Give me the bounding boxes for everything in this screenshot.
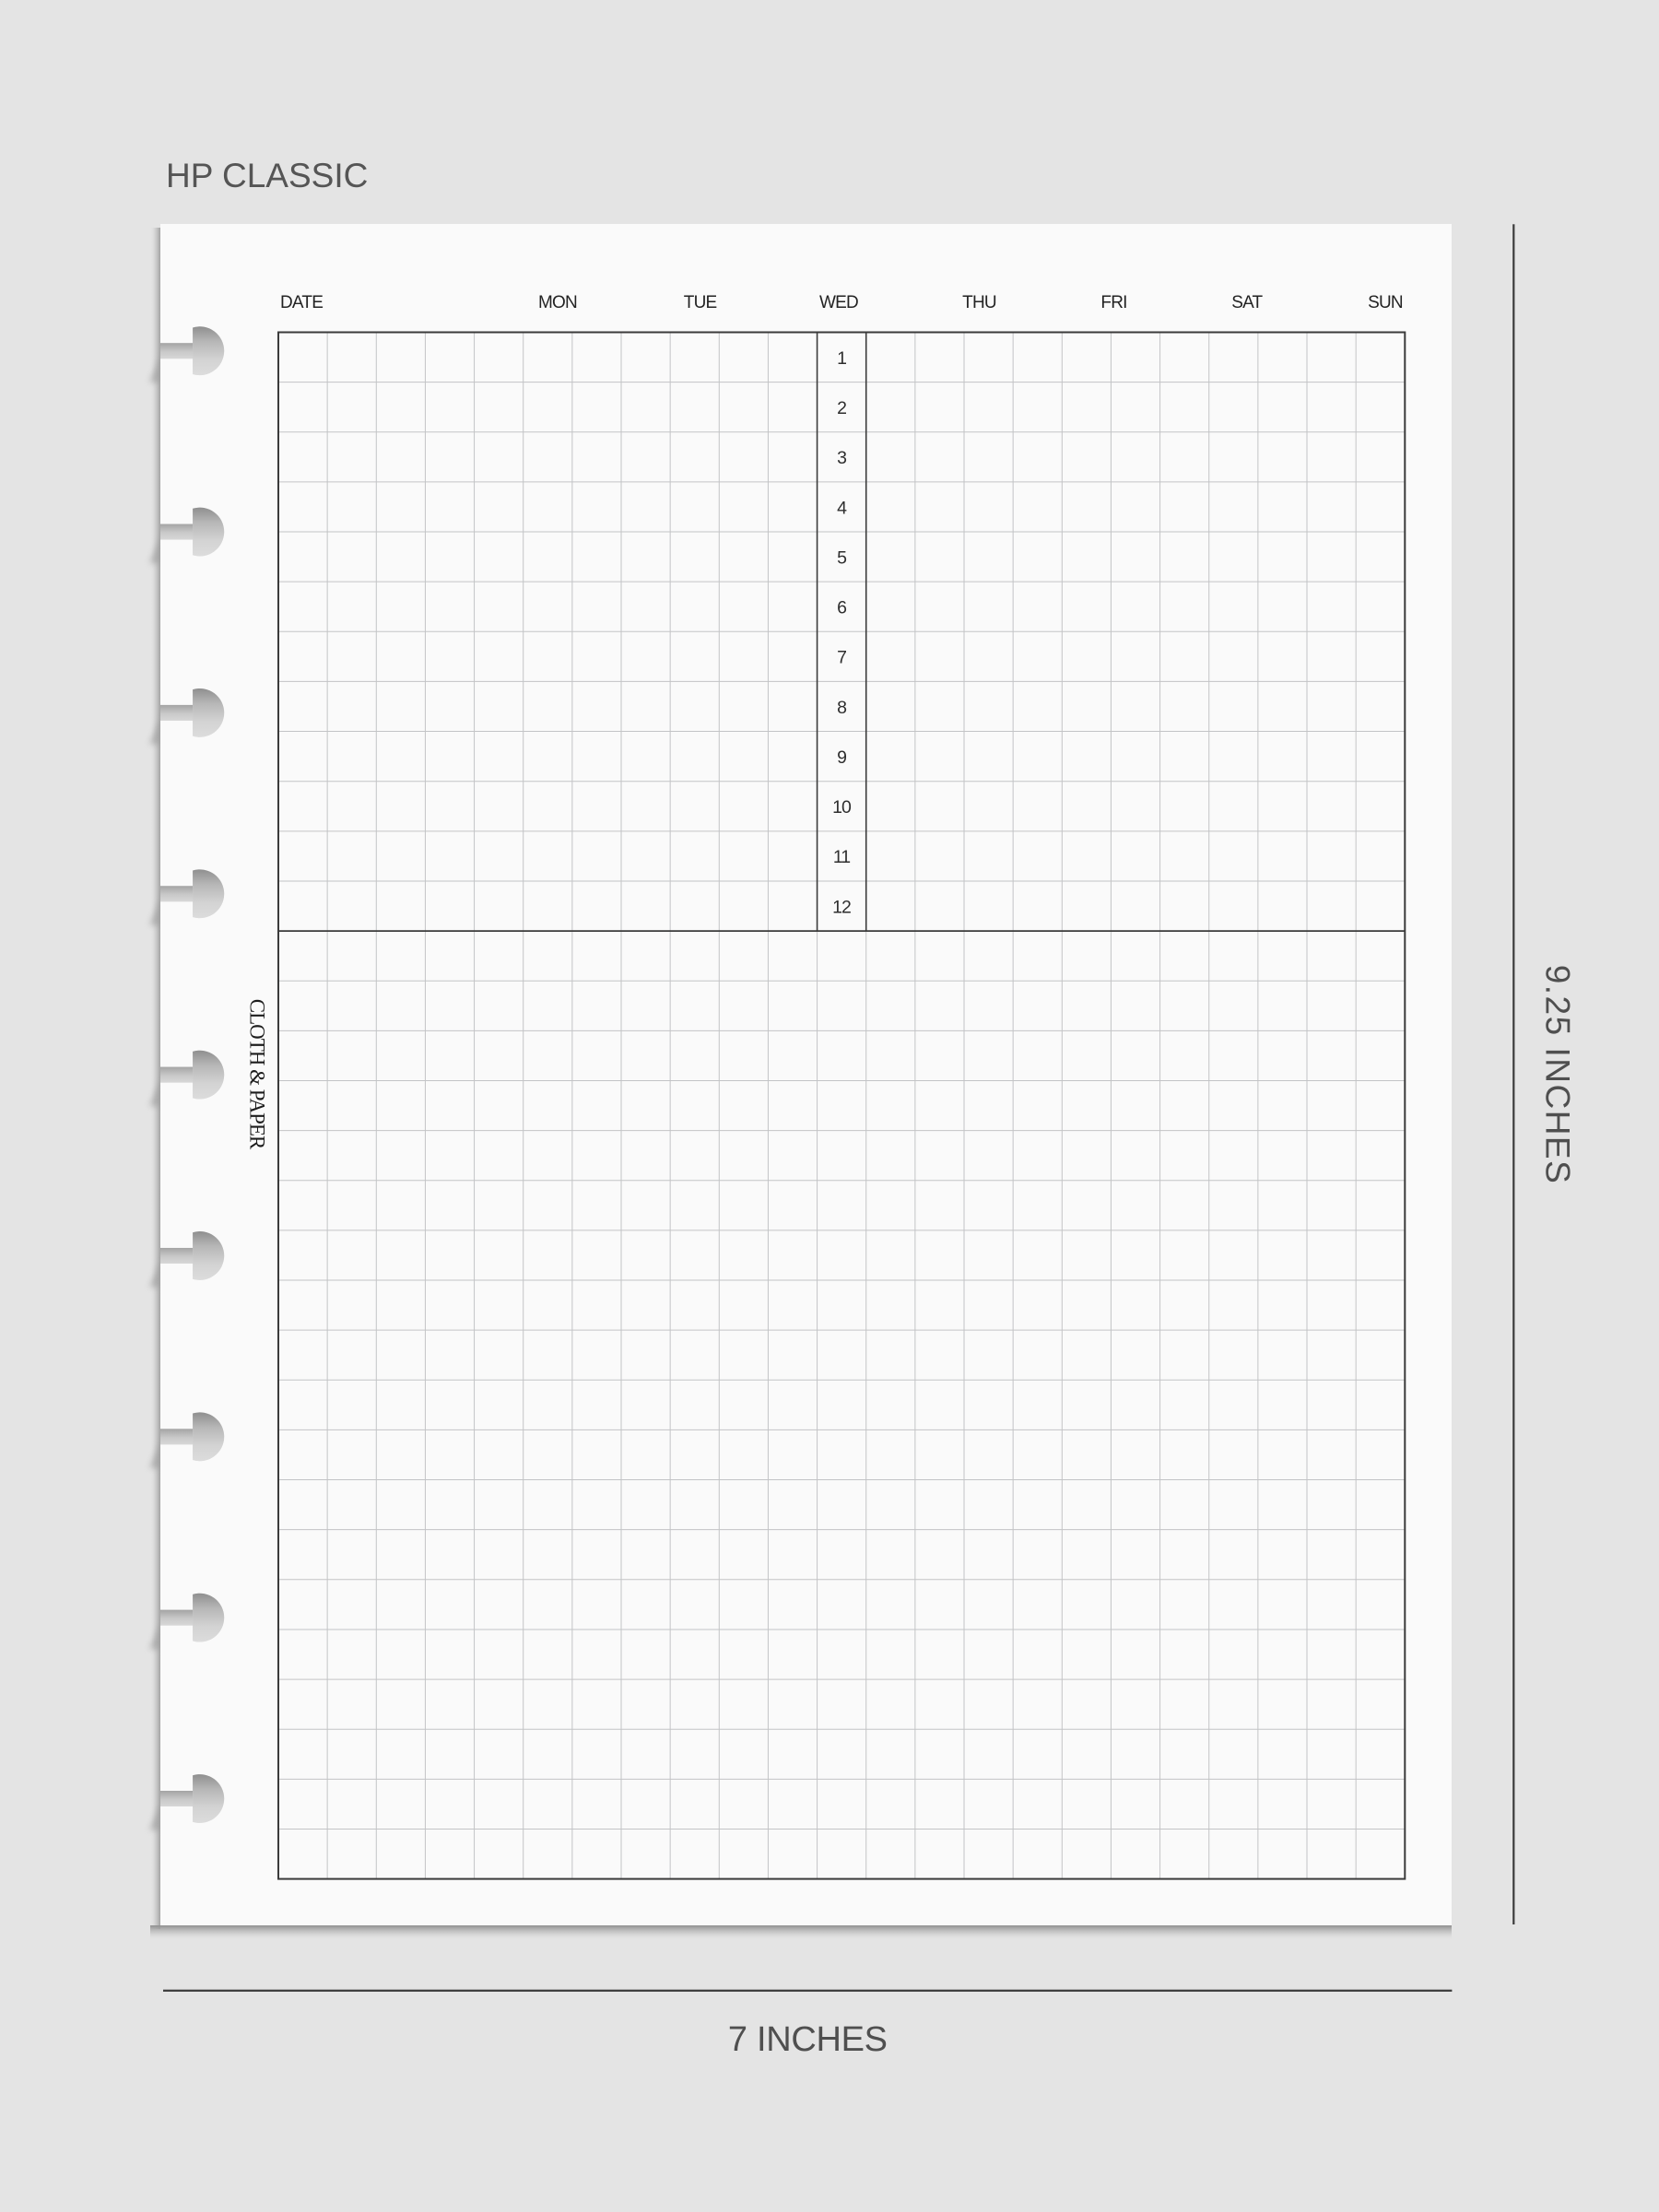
svg-text:10: 10 xyxy=(832,797,852,818)
svg-text:SUN: SUN xyxy=(1368,293,1403,312)
svg-text:9: 9 xyxy=(837,747,846,768)
svg-text:12: 12 xyxy=(832,897,851,917)
svg-text:1: 1 xyxy=(837,348,846,369)
svg-text:THU: THU xyxy=(962,293,996,312)
svg-text:FRI: FRI xyxy=(1100,293,1126,312)
svg-text:6: 6 xyxy=(837,598,846,618)
svg-text:TUE: TUE xyxy=(684,293,717,312)
svg-text:WED: WED xyxy=(819,293,858,312)
svg-text:9.25 INCHES: 9.25 INCHES xyxy=(1539,965,1577,1185)
svg-text:8: 8 xyxy=(837,698,846,718)
svg-text:SAT: SAT xyxy=(1231,293,1263,312)
svg-text:7: 7 xyxy=(837,648,846,668)
svg-text:CLOTH & PAPER: CLOTH & PAPER xyxy=(245,999,268,1150)
svg-text:HP CLASSIC: HP CLASSIC xyxy=(166,157,368,194)
svg-text:4: 4 xyxy=(837,498,847,518)
svg-text:3: 3 xyxy=(837,448,846,468)
svg-text:11: 11 xyxy=(833,847,850,867)
svg-text:2: 2 xyxy=(837,398,846,418)
svg-text:5: 5 xyxy=(837,547,847,568)
svg-text:7 INCHES: 7 INCHES xyxy=(728,2020,888,2059)
svg-text:DATE: DATE xyxy=(280,293,323,312)
svg-text:MON: MON xyxy=(538,293,577,312)
